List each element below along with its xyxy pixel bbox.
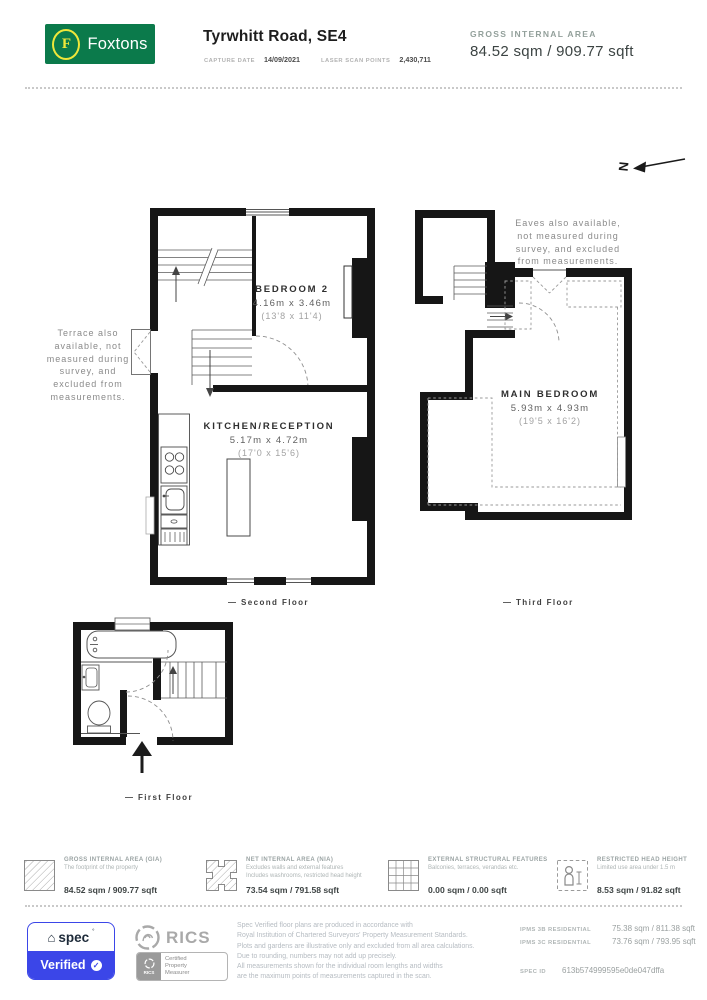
hatched-square-icon: [23, 857, 56, 895]
spec-wordmark: spec: [58, 930, 89, 945]
legend-gia: GROSS INTERNAL AREA (GIA) The footprint …: [23, 857, 162, 895]
disclaimer-line: All measurements shown for the individua…: [237, 962, 474, 972]
second-floor-plan: [132, 208, 376, 585]
ipms-3b-value: 75.38 sqm / 811.38 sqft: [612, 924, 695, 933]
legend-head-height: RESTRICTED HEAD HEIGHT Limited use area …: [556, 857, 687, 895]
footer-divider: [25, 905, 682, 907]
legend-nia-desc1: Excludes walls and external features: [246, 865, 362, 871]
spec-logo: ⌂ spec °: [28, 923, 114, 951]
first-floor-plan: [73, 618, 233, 773]
floorplan-page: F Foxtons Tyrwhitt Road, SE4 CAPTURE DAT…: [0, 0, 707, 1000]
legend-nia-desc2: Includes washrooms, restricted head heig…: [246, 873, 362, 879]
spec-verified-strip: Verified ✓: [28, 951, 114, 979]
rics-mini-logo: RICS: [137, 953, 161, 980]
spec-id-row: SPEC ID 613b574999595e0de047dffa: [520, 966, 664, 975]
eaves-line: survey, and excluded: [498, 243, 638, 256]
terrace-line: measured during: [23, 353, 153, 366]
main-bedroom-name: MAIN BEDROOM: [501, 389, 599, 400]
disclaimer-line: Due to rounding, numbers may not add up …: [237, 952, 474, 962]
disclaimer-line: are the maximum points of measurements c…: [237, 972, 474, 982]
legend-external: EXTERNAL STRUCTURAL FEATURES Balconies, …: [387, 857, 548, 895]
terrace-line: measurements.: [23, 391, 153, 404]
ipms-3c-label: IPMS 3C RESIDENTIAL: [520, 940, 612, 946]
second-floor-label: — Second Floor: [228, 598, 309, 607]
legend-external-value: 0.00 sqm / 0.00 sqft: [428, 885, 548, 895]
legend-nia-title: NET INTERNAL AREA (NIA): [246, 857, 362, 863]
kitchen-imperial: (17'0 x 15'6): [238, 448, 300, 458]
disclaimer-line: Plots and gardens are illustrative only …: [237, 942, 474, 952]
legend-head-height-value: 8.53 sqm / 91.82 sqft: [597, 885, 687, 895]
rics-lion-icon: [134, 924, 161, 951]
disclaimer-text: Spec Verified floor plans are produced i…: [237, 921, 474, 983]
legend-nia: NET INTERNAL AREA (NIA) Excludes walls a…: [205, 857, 362, 895]
legend-gia-desc: The footprint of the property: [64, 865, 162, 871]
terrace-line: survey, and: [23, 365, 153, 378]
terrace-line: Terrace also: [23, 327, 153, 340]
legend-external-desc: Balconies, terraces, verandas etc.: [428, 865, 548, 871]
spec-verified-badge: ⌂ spec ° Verified ✓: [27, 922, 115, 980]
terrace-line: excluded from: [23, 378, 153, 391]
disclaimer-line: Spec Verified floor plans are produced i…: [237, 921, 474, 931]
eaves-line: not measured during: [498, 230, 638, 243]
rics-logo: RICS: [134, 924, 211, 951]
third-floor-label: — Third Floor: [503, 598, 574, 607]
house-icon: ⌂: [47, 931, 55, 944]
bedroom2-imperial: (13'8 x 11'4): [261, 311, 322, 321]
legend-nia-value: 73.54 sqm / 791.58 sqft: [246, 885, 362, 895]
spec-degree-mark: °: [92, 929, 94, 935]
bedroom2-name: BEDROOM 2: [255, 284, 329, 295]
bedroom2-metric: 4.16m x 3.46m: [253, 298, 331, 309]
rics-cert-text: Certified Property Measurer: [161, 953, 227, 980]
kitchen-metric: 5.17m x 4.72m: [230, 435, 308, 446]
hatched-plan-icon: [205, 857, 238, 895]
rics-cert-line: Measurer: [165, 970, 227, 977]
verified-text: Verified: [40, 958, 85, 972]
rics-mini-lion-icon: [144, 958, 155, 969]
rics-mini-word: RICS: [144, 970, 155, 975]
legend-gia-value: 84.52 sqm / 909.77 sqft: [64, 885, 162, 895]
ipms-row-3b: IPMS 3B RESIDENTIAL 75.38 sqm / 811.38 s…: [520, 924, 696, 933]
rics-cert-line: Property: [165, 963, 227, 970]
legend-external-title: EXTERNAL STRUCTURAL FEATURES: [428, 857, 548, 863]
rics-wordmark: RICS: [166, 928, 211, 948]
check-icon: ✓: [91, 960, 102, 971]
ipms-table: IPMS 3B RESIDENTIAL 75.38 sqm / 811.38 s…: [520, 924, 696, 950]
kitchen-name: KITCHEN/RECEPTION: [204, 421, 335, 432]
main-bedroom-imperial: (19'5 x 16'2): [519, 416, 581, 426]
legend-head-height-title: RESTRICTED HEAD HEIGHT: [597, 857, 687, 863]
rics-cert-line: Certified: [165, 956, 227, 963]
main-bedroom-metric: 5.93m x 4.93m: [511, 403, 589, 414]
spec-id-value: 613b574999595e0de047dffa: [562, 966, 664, 975]
terrace-annotation: Terrace also available, not measured dur…: [23, 327, 153, 404]
legend-head-height-desc: Limited use area under 1.5 m: [597, 865, 687, 871]
spec-id-label: SPEC ID: [520, 969, 562, 975]
eaves-line: from measurements.: [498, 255, 638, 268]
ipms-3c-value: 73.76 sqm / 793.95 sqft: [612, 937, 696, 946]
eaves-annotation: Eaves also available, not measured durin…: [498, 217, 638, 268]
terrace-line: available, not: [23, 340, 153, 353]
person-dashed-icon: [556, 857, 589, 895]
legend-gia-title: GROSS INTERNAL AREA (GIA): [64, 857, 162, 863]
eaves-line: Eaves also available,: [498, 217, 638, 230]
ipms-3b-label: IPMS 3B RESIDENTIAL: [520, 927, 612, 933]
first-floor-label: — First Floor: [125, 793, 193, 802]
rics-certified-badge: RICS Certified Property Measurer: [136, 952, 228, 981]
ipms-row-3c: IPMS 3C RESIDENTIAL 73.76 sqm / 793.95 s…: [520, 937, 696, 946]
floorplans-drawing: [0, 0, 707, 850]
disclaimer-line: Royal Institution of Chartered Surveyors…: [237, 931, 474, 941]
grid-square-icon: [387, 857, 420, 895]
